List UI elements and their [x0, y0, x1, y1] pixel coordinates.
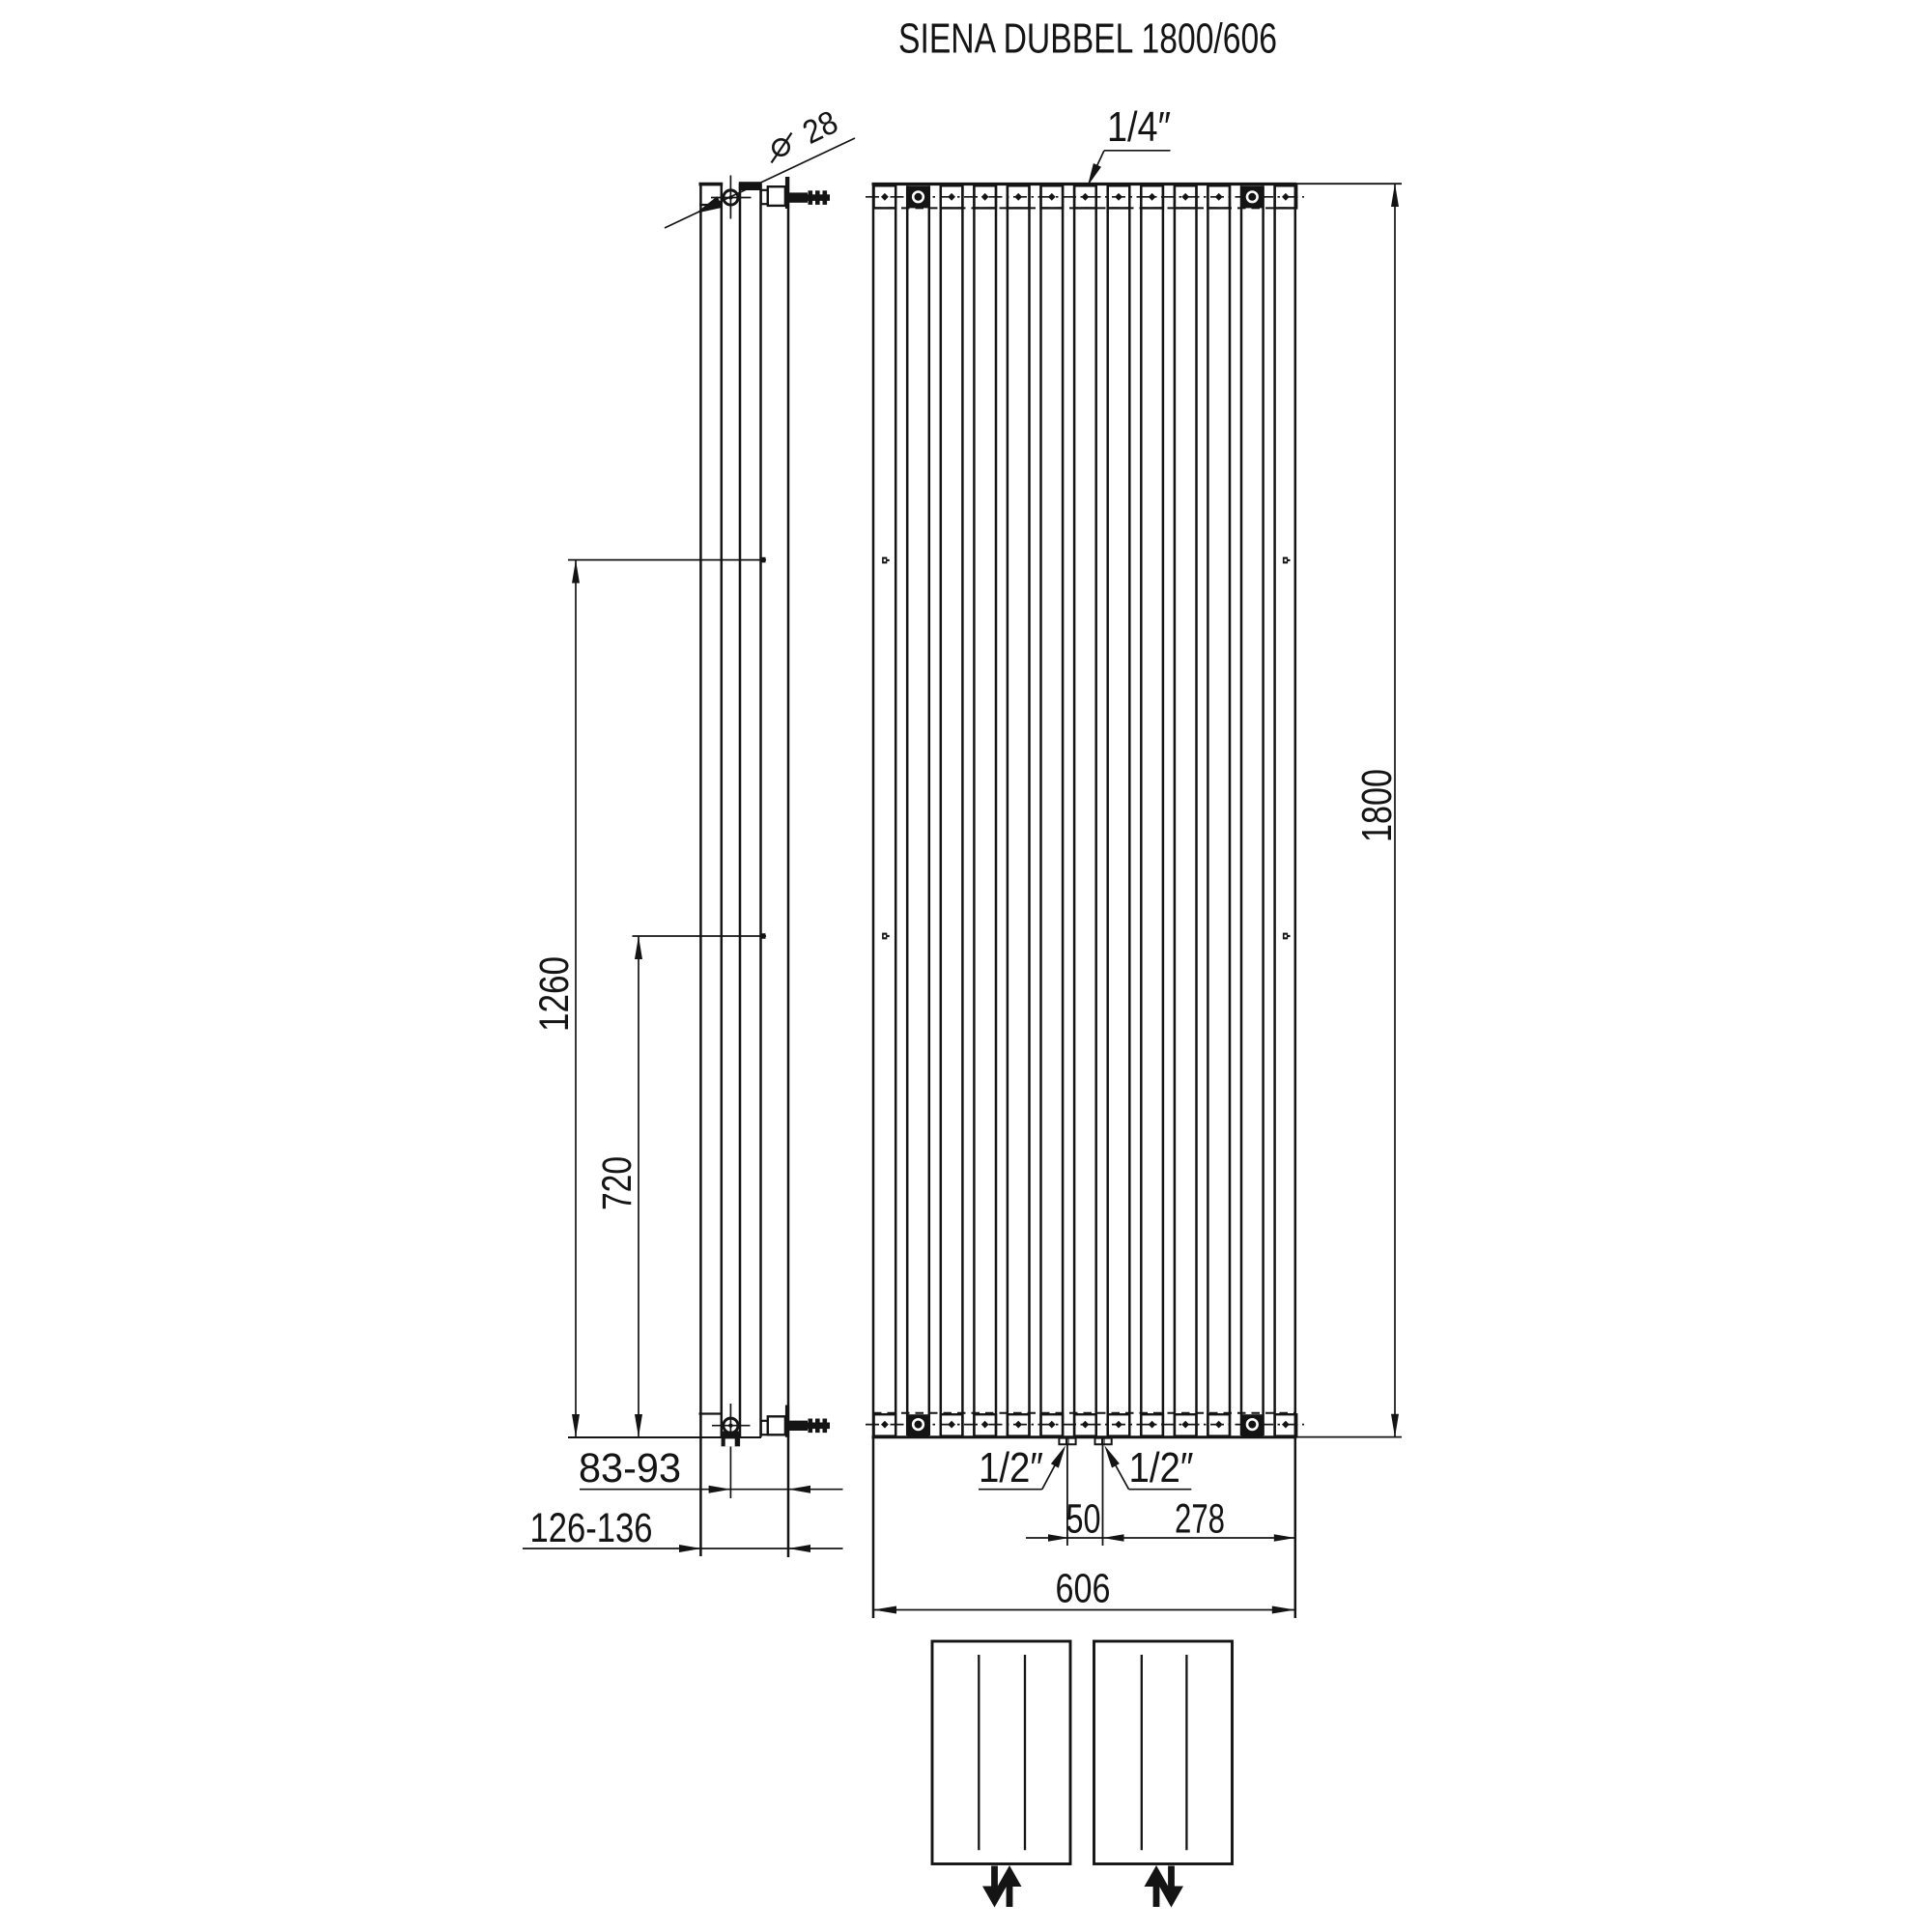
svg-text:50: 50	[1066, 1496, 1101, 1543]
svg-text:SIENA DUBBEL 1800/606: SIENA DUBBEL 1800/606	[898, 15, 1277, 63]
svg-text:720: 720	[594, 1156, 640, 1210]
svg-text:1/2″: 1/2″	[979, 1444, 1043, 1492]
svg-text:1800: 1800	[1353, 769, 1401, 842]
svg-text:28: 28	[797, 103, 843, 151]
svg-text:83-93: 83-93	[579, 1445, 681, 1492]
svg-text:1/2″: 1/2″	[1129, 1444, 1194, 1492]
svg-text:1260: 1260	[531, 956, 578, 1032]
svg-text:126-136: 126-136	[530, 1505, 653, 1551]
svg-text:606: 606	[1056, 1566, 1111, 1612]
svg-text:278: 278	[1175, 1496, 1225, 1543]
svg-text:1/4″: 1/4″	[1107, 103, 1171, 151]
